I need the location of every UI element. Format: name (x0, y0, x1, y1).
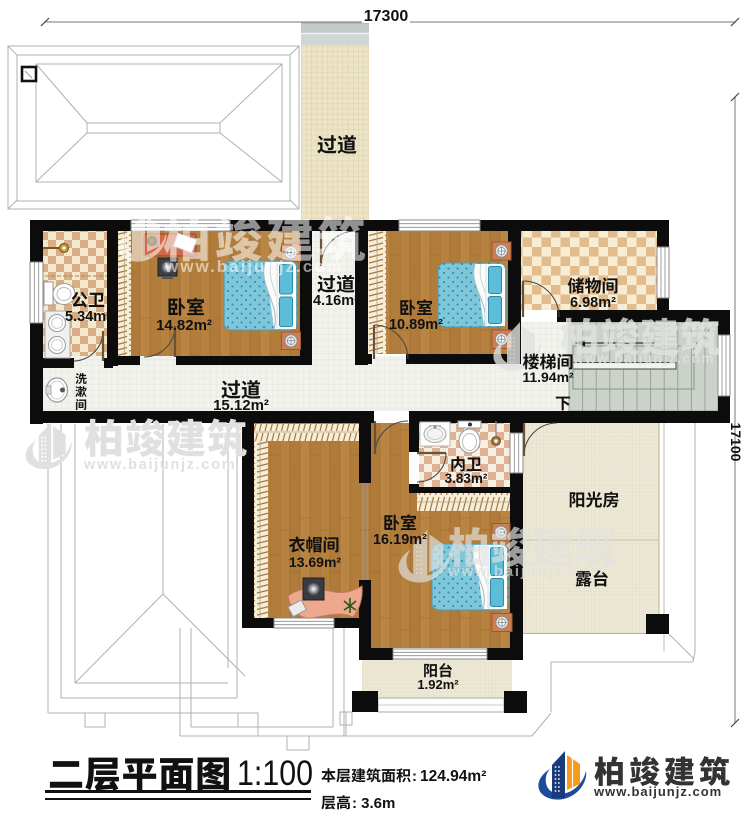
svg-text:www.baijunjz.com: www.baijunjz.com (572, 351, 715, 366)
svg-text:17300: 17300 (364, 8, 409, 25)
svg-text:13.69m²: 13.69m² (289, 554, 341, 570)
svg-text:4.16m²: 4.16m² (313, 293, 359, 309)
svg-text:3.83m²: 3.83m² (445, 471, 488, 486)
svg-text:10.89m²: 10.89m² (389, 317, 443, 333)
svg-text:1:100: 1:100 (237, 754, 313, 793)
svg-text:124.94m²: 124.94m² (420, 768, 486, 785)
svg-text:1.92m²: 1.92m² (417, 677, 459, 692)
svg-text:5.34m²: 5.34m² (65, 309, 111, 325)
svg-text:www.baijunjz.com: www.baijunjz.com (83, 457, 236, 473)
svg-text:17100: 17100 (728, 423, 744, 462)
svg-text:14.82m²: 14.82m² (156, 317, 212, 334)
svg-text:6.98m²: 6.98m² (570, 295, 616, 311)
svg-text:: 3.6m: : 3.6m (352, 795, 395, 812)
svg-text:11.94m²: 11.94m² (522, 369, 574, 385)
svg-text:16.19m²: 16.19m² (373, 532, 427, 548)
svg-text:www.baijunjz.com: www.baijunjz.com (164, 257, 344, 276)
svg-text:15.12m²: 15.12m² (213, 397, 269, 414)
svg-text:www.baijunjz.com: www.baijunjz.com (593, 784, 722, 799)
svg-text::: : (412, 768, 417, 785)
